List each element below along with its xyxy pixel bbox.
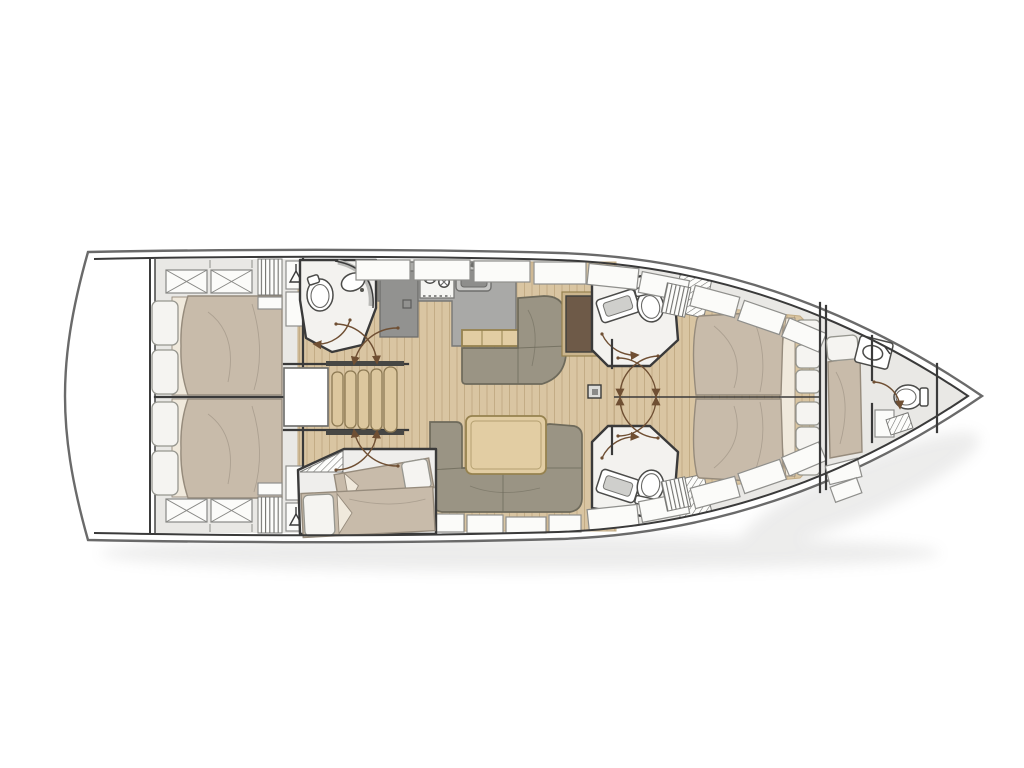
midship-cabin [298, 449, 436, 538]
pillow [152, 451, 178, 495]
pillow [826, 335, 859, 362]
sofa-base-lockers [436, 514, 581, 533]
pillow [152, 350, 178, 394]
pillow [303, 494, 335, 537]
boat-layout-figure [0, 0, 1024, 768]
deck-plan-svg [0, 0, 1024, 768]
lower-berth [301, 487, 435, 538]
settee-step [462, 330, 526, 346]
faucet-icon [360, 288, 364, 292]
louvre-vent-icon [258, 259, 282, 295]
swim-platform [94, 258, 155, 534]
mast-post [588, 385, 601, 398]
engine-box [284, 368, 328, 426]
pillow [152, 301, 178, 345]
pillow [152, 402, 178, 446]
louvre-vent-icon [258, 497, 282, 533]
dining-table [466, 416, 546, 474]
companionway-stairs [332, 367, 397, 432]
